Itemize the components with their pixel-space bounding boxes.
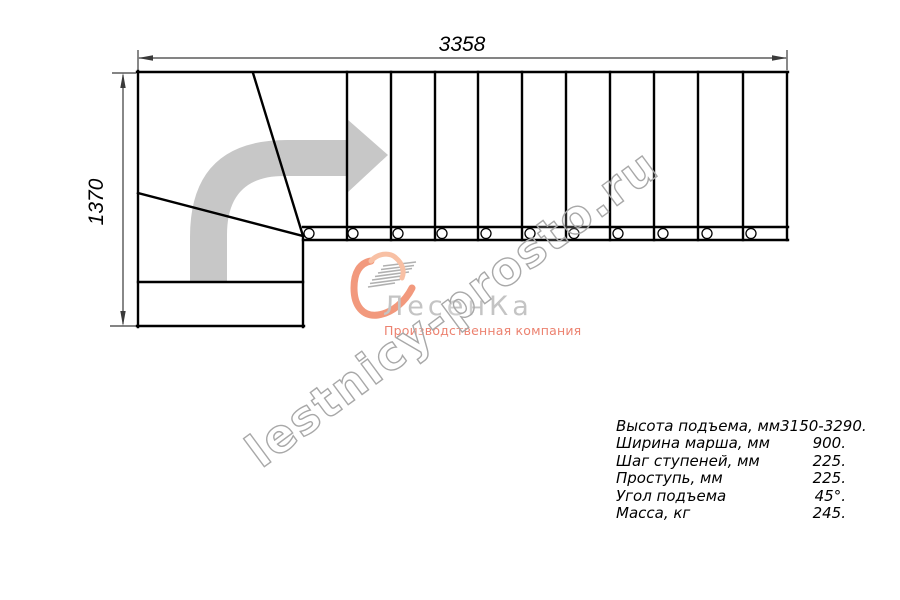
width-dimension: 3358 (138, 33, 787, 70)
specs-table: Высота подъема, мм 3150-3290. Ширина мар… (616, 418, 846, 522)
spec-label: Высота подъема, мм (616, 418, 780, 435)
stair-drawing-canvas: 3358 1370 (0, 0, 900, 600)
spec-label: Угол подъема (616, 488, 726, 505)
dimension-arrow-right (772, 55, 787, 60)
spec-row: Масса, кг 245. (616, 505, 846, 522)
spec-row: Шаг ступеней, мм 225. (616, 453, 846, 470)
spec-value: 225. (813, 453, 846, 470)
spec-label: Масса, кг (616, 505, 690, 522)
baluster-circle (613, 229, 623, 239)
direction-arrow (190, 119, 388, 282)
baluster-circle (348, 229, 358, 239)
baluster-circle (437, 229, 447, 239)
spec-row: Высота подъема, мм 3150-3290. (616, 418, 846, 435)
spec-label: Проступь, мм (616, 470, 723, 487)
baluster-circle (304, 229, 314, 239)
spec-row: Проступь, мм 225. (616, 470, 846, 487)
baluster-circle (393, 229, 403, 239)
spec-value: 45°. (815, 488, 846, 505)
spec-label: Ширина марша, мм (616, 435, 770, 452)
spec-value: 225. (813, 470, 846, 487)
baluster-circle (481, 229, 491, 239)
logo-speed-lines (368, 262, 416, 287)
width-dimension-label: 3358 (439, 33, 486, 56)
spec-value: 3150-3290. (780, 418, 867, 435)
height-dimension-label: 1370 (85, 178, 108, 225)
direction-arrow-shape (190, 119, 388, 282)
dimension-arrow-left (138, 55, 153, 60)
spec-value: 900. (813, 435, 846, 452)
baluster-circle (658, 229, 668, 239)
baluster-circle (746, 229, 756, 239)
dimension-arrow-top (120, 73, 125, 88)
dimension-arrow-bottom (120, 311, 125, 326)
baluster-circle (702, 229, 712, 239)
spec-value: 245. (813, 505, 846, 522)
spec-label: Шаг ступеней, мм (616, 453, 760, 470)
height-dimension: 1370 (85, 73, 136, 326)
spec-row: Угол подъема 45°. (616, 488, 846, 505)
spec-row: Ширина марша, мм 900. (616, 435, 846, 452)
